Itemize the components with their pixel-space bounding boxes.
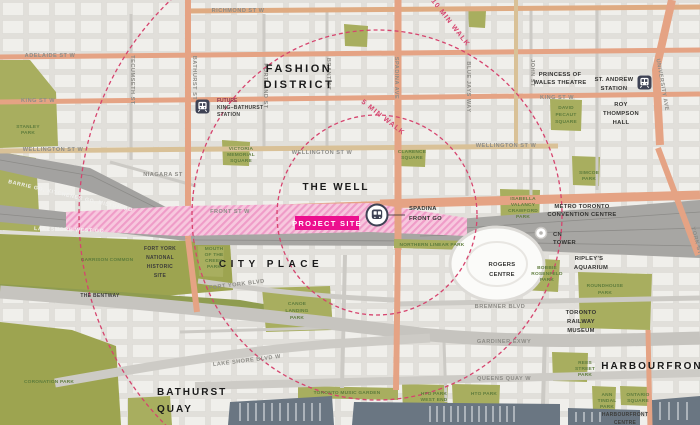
park-patch <box>344 24 368 47</box>
project-site-label: PROJECT SITE <box>292 216 362 230</box>
toronto-area-map: PROJECT SITE RICHMOND ST WADELAIDE ST WK… <box>0 0 700 425</box>
map-canvas: PROJECT SITE RICHMOND ST WADELAIDE ST WK… <box>0 0 700 425</box>
ann-tindal-park-area <box>592 386 616 412</box>
victoria-square-area <box>222 140 250 166</box>
spadina-ave-south <box>396 248 398 390</box>
subway-train-icon <box>196 100 210 114</box>
project-site-label-text: PROJECT SITE <box>292 219 362 228</box>
little-norway-park-area <box>128 396 172 425</box>
mouth-of-creek-area <box>198 246 224 277</box>
park-patch <box>468 10 486 28</box>
go-train-station-icon <box>367 205 388 226</box>
ontario-square-area <box>620 386 650 406</box>
subway-train-icon <box>638 76 652 90</box>
lower-simcoe-st <box>648 330 650 425</box>
david-pecaut-square-area <box>550 99 582 131</box>
